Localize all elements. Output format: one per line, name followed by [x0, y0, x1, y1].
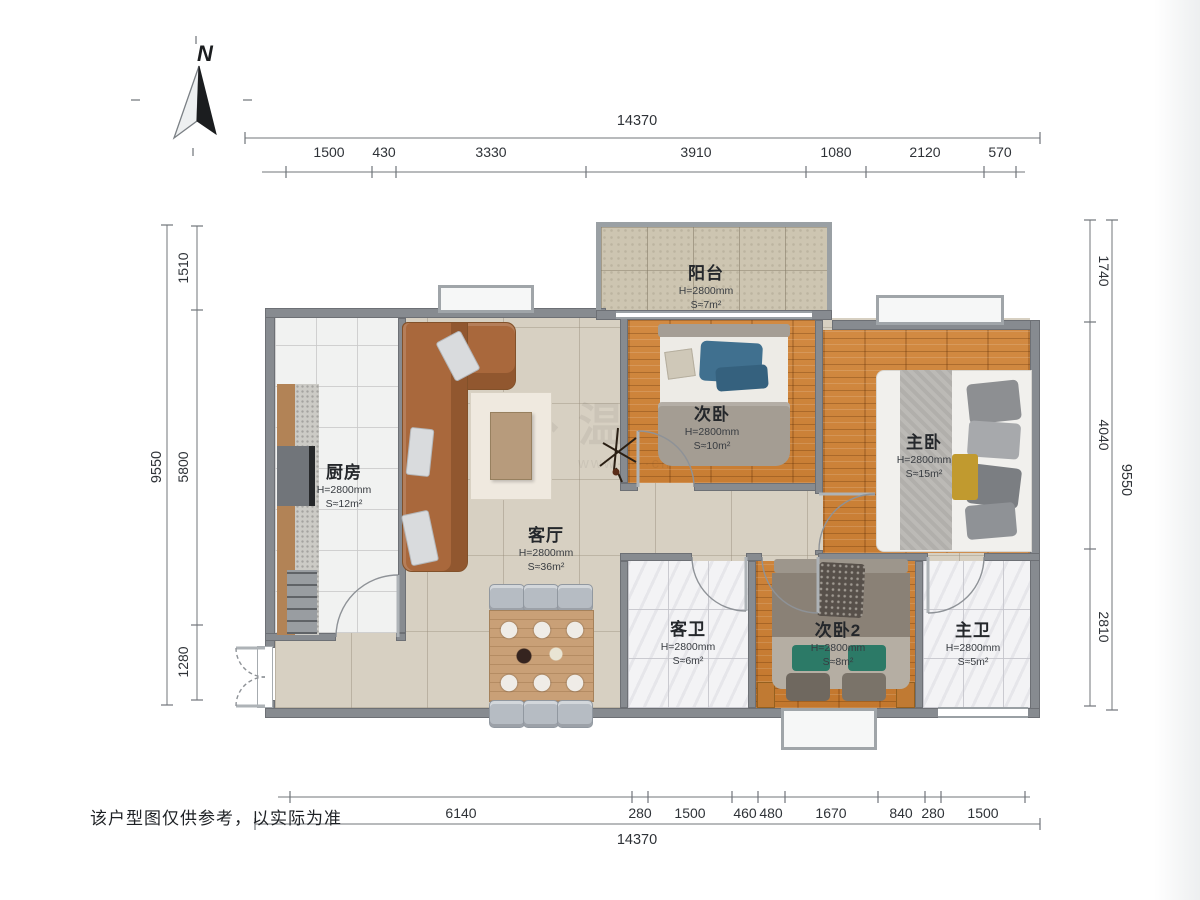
room-height: H=2800mm	[849, 453, 999, 467]
room-height: H=2800mm	[613, 640, 763, 654]
dim-top-total: 14370	[617, 113, 657, 129]
room-label-balcony: 阳台 H=2800mm S≈7m²	[631, 264, 781, 312]
dim-bottom-seg: 6140	[445, 805, 476, 821]
dim-top-seg: 3910	[680, 144, 711, 160]
dim-bottom-seg: 1670	[815, 805, 846, 821]
dim-right-seg: 1740	[1096, 255, 1112, 286]
room-label-guestbath: 客卫 H=2800mm S≈6m²	[613, 620, 763, 668]
dim-left-total: 9550	[149, 451, 165, 483]
dim-right-seg: 4040	[1096, 419, 1112, 450]
room-name: 阳台	[631, 264, 781, 284]
room-area: S≈36m²	[471, 560, 621, 574]
room-height: H=2800mm	[471, 546, 621, 560]
dim-right-seg: 2810	[1096, 611, 1112, 642]
room-name: 客卫	[613, 620, 763, 640]
room-name: 主卧	[849, 433, 999, 453]
room-area: S≈10m²	[637, 439, 787, 453]
north-compass-icon	[131, 36, 252, 156]
plan-line-layer	[0, 0, 1200, 900]
dim-bottom-seg: 280	[921, 805, 944, 821]
room-name: 厨房	[269, 463, 419, 483]
dim-right-total: 9550	[1118, 464, 1134, 496]
room-name: 客厅	[471, 526, 621, 546]
dim-bottom-seg: 480	[759, 805, 782, 821]
room-label-living: 客厅 H=2800mm S≈36m²	[471, 526, 621, 574]
room-height: H=2800mm	[637, 425, 787, 439]
dim-top-seg: 430	[372, 144, 395, 160]
dim-top-seg: 1080	[820, 144, 851, 160]
room-area: S≈7m²	[631, 298, 781, 312]
room-area: S≈8m²	[763, 655, 913, 669]
dim-bottom-total: 14370	[617, 832, 657, 848]
room-label-bedroom2: 次卧 H=2800mm S≈10m²	[637, 405, 787, 453]
dim-bottom-seg: 460	[733, 805, 756, 821]
room-label-kitchen: 厨房 H=2800mm S≈12m²	[269, 463, 419, 511]
room-area: S≈15m²	[849, 467, 999, 481]
room-area: S≈5m²	[898, 655, 1048, 669]
dim-top-seg: 1500	[313, 144, 344, 160]
dim-top-seg: 2120	[909, 144, 940, 160]
plant-icon	[600, 428, 636, 482]
room-area: S≈12m²	[269, 497, 419, 511]
dim-left-seg: 1280	[175, 646, 191, 677]
room-height: H=2800mm	[763, 641, 913, 655]
room-name: 主卫	[898, 621, 1048, 641]
room-name: 次卧	[637, 405, 787, 425]
dim-bottom-seg: 840	[889, 805, 912, 821]
room-label-masterbath: 主卫 H=2800mm S≈5m²	[898, 621, 1048, 669]
compass-north-label: N	[197, 41, 213, 67]
room-height: H=2800mm	[269, 483, 419, 497]
floor-plan-page: 温 www·····cn	[0, 0, 1200, 900]
dim-left-seg: 5800	[175, 451, 191, 482]
dim-bottom-seg: 1500	[967, 805, 998, 821]
dim-top-seg: 570	[988, 144, 1011, 160]
dim-top-seg: 3330	[475, 144, 506, 160]
disclaimer-text: 该户型图仅供参考，以实际为准	[90, 804, 342, 829]
room-label-master: 主卧 H=2800mm S≈15m²	[849, 433, 999, 481]
room-name: 次卧2	[763, 621, 913, 641]
room-label-bedroom3: 次卧2 H=2800mm S≈8m²	[763, 621, 913, 669]
dim-bottom-seg: 280	[628, 805, 651, 821]
dim-bottom-seg: 1500	[674, 805, 705, 821]
room-height: H=2800mm	[898, 641, 1048, 655]
room-height: H=2800mm	[631, 284, 781, 298]
dim-left-seg: 1510	[175, 252, 191, 283]
room-area: S≈6m²	[613, 654, 763, 668]
